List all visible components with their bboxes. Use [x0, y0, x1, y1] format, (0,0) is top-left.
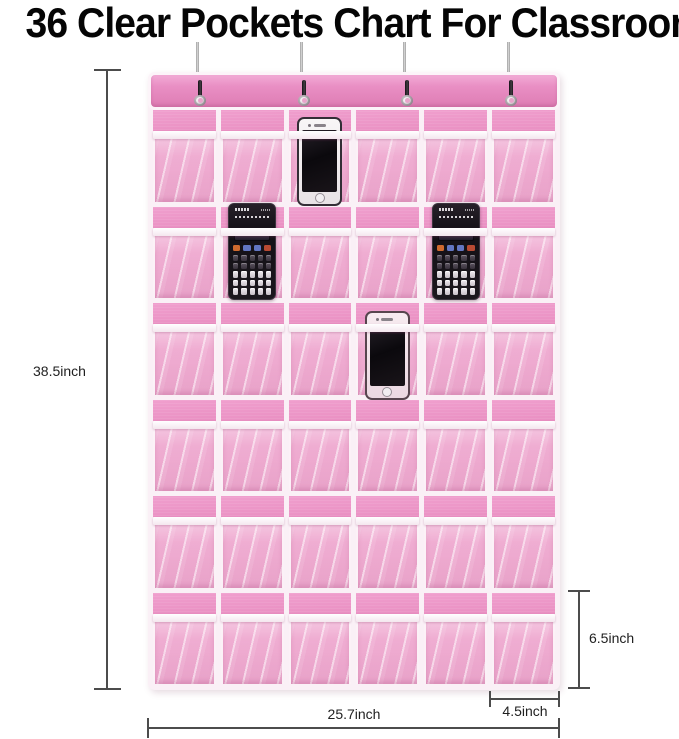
clear-pocket [424, 131, 487, 201]
calculator-key-icon [470, 255, 475, 261]
clear-pocket [289, 517, 352, 587]
calculator-keypad [233, 255, 271, 295]
dimension-tick [568, 687, 590, 689]
clear-pocket [221, 517, 284, 587]
clear-pocket [424, 421, 487, 491]
calculator-key-icon [470, 263, 475, 269]
pocket-height-label: 6.5inch [589, 630, 634, 646]
pocket-binding [356, 228, 419, 236]
hanging-rod [196, 42, 199, 75]
pocket-cell-r1-c5 [424, 110, 487, 202]
pocket-binding [492, 131, 555, 139]
pocket-grid [148, 110, 560, 690]
pocket-binding [492, 517, 555, 525]
pocket-cell-r4-c6 [492, 400, 555, 492]
calculator-brand-text [235, 208, 250, 211]
calculator-model-text [465, 209, 474, 211]
calculator-key-icon [461, 280, 466, 286]
clear-pocket [153, 517, 216, 587]
clear-pocket [153, 131, 216, 201]
grommet-ring-icon [298, 95, 310, 106]
pocket-cell-r4-c1 [153, 400, 216, 492]
clear-pocket [153, 421, 216, 491]
calculator-label-text [235, 216, 269, 218]
hanging-hook [504, 75, 518, 113]
page-title: 36 Clear Pockets Chart For Classroom [26, 0, 679, 46]
grommet-ring-icon [194, 95, 206, 106]
pocket-cell-r6-c6 [492, 593, 555, 685]
calculator-key-icon [445, 271, 450, 277]
top-hanging-band [148, 72, 560, 110]
pocket-cell-r2-c3 [289, 207, 352, 299]
calculator-key-icon [258, 255, 263, 261]
pocket-binding [221, 131, 284, 139]
calculator-key-icon [470, 271, 475, 277]
calculator-key-icon [445, 263, 450, 269]
clear-pocket [289, 421, 352, 491]
grommet-ring-icon [505, 95, 517, 106]
calculator-key-icon [461, 255, 466, 261]
pocket-binding [153, 614, 216, 622]
calculator-item [432, 203, 480, 300]
clear-pocket [424, 614, 487, 684]
calculator-key-icon [437, 280, 442, 286]
pocket-cell-r5-c3 [289, 496, 352, 588]
pocket-binding [424, 131, 487, 139]
product-image: 36 Clear Pockets Chart For Classroom 38.… [0, 0, 679, 739]
calculator-keypad [437, 255, 475, 295]
clear-pocket [356, 228, 419, 298]
phone-camera-icon [376, 318, 379, 321]
calculator-key-icon [266, 255, 271, 261]
calculator-key-icon [461, 271, 466, 277]
calculator-function-keys [437, 245, 475, 251]
clear-pocket [492, 421, 555, 491]
overall-height-dimension-line [106, 70, 108, 690]
pocket-binding [221, 614, 284, 622]
pocket-binding [492, 421, 555, 429]
calculator-key-icon [461, 263, 466, 269]
calculator-key-icon [233, 255, 238, 261]
calculator-key-icon [437, 263, 442, 269]
calculator-key-icon [241, 271, 246, 277]
pocket-binding [424, 614, 487, 622]
phone-home-button-icon [315, 193, 325, 203]
hanging-rod [300, 42, 303, 75]
pocket-organizer [148, 72, 560, 690]
pocket-cell-r2-c2 [221, 207, 284, 299]
pocket-binding [289, 421, 352, 429]
pocket-cell-r6-c2 [221, 593, 284, 685]
calculator-key-icon [241, 288, 246, 294]
pocket-cell-r3-c3 [289, 303, 352, 395]
phone-camera-icon [308, 124, 311, 127]
calculator-key-icon [453, 288, 458, 294]
calculator-key-icon [258, 271, 263, 277]
pocket-cell-r1-c6 [492, 110, 555, 202]
hanging-rod [507, 42, 510, 75]
pocket-cell-r1-c2 [221, 110, 284, 202]
clear-pocket [424, 517, 487, 587]
pocket-binding [424, 228, 487, 236]
clear-pocket [492, 228, 555, 298]
pocket-cell-r5-c6 [492, 496, 555, 588]
pocket-cell-r3-c6 [492, 303, 555, 395]
clear-pocket [289, 614, 352, 684]
clear-pocket [356, 421, 419, 491]
pocket-cell-r2-c5 [424, 207, 487, 299]
calculator-key-icon [266, 280, 271, 286]
pocket-cell-r4-c3 [289, 400, 352, 492]
pocket-binding [153, 517, 216, 525]
pocket-cell-r6-c4 [356, 593, 419, 685]
pocket-cell-r1-c1 [153, 110, 216, 202]
calculator-key-icon [241, 255, 246, 261]
calculator-key-icon [461, 288, 466, 294]
calculator-key-icon [250, 255, 255, 261]
calculator-key-icon [445, 288, 450, 294]
calculator-key-icon [233, 271, 238, 277]
calculator-key-icon [233, 280, 238, 286]
pocket-binding [356, 324, 419, 332]
pocket-cell-r5-c5 [424, 496, 487, 588]
clear-pocket [221, 324, 284, 394]
pocket-binding [221, 421, 284, 429]
clear-pocket [492, 324, 555, 394]
clear-pocket [153, 324, 216, 394]
calculator-key-icon [266, 288, 271, 294]
calculator-item [228, 203, 276, 300]
hanging-hook [400, 75, 414, 113]
pocket-binding [492, 324, 555, 332]
calculator-key-icon [250, 271, 255, 277]
calculator-key-icon [437, 255, 442, 261]
calculator-function-keys [233, 245, 271, 251]
clear-pocket [289, 228, 352, 298]
calculator-key-icon [470, 280, 475, 286]
pocket-binding [356, 421, 419, 429]
pocket-binding [289, 131, 352, 139]
pocket-cell-r6-c5 [424, 593, 487, 685]
calculator-key-icon [241, 280, 246, 286]
hanging-hook [297, 75, 311, 113]
pocket-cell-r1-c3 [289, 110, 352, 202]
clear-pocket [153, 228, 216, 298]
pocket-binding [356, 517, 419, 525]
calculator-key-icon [453, 263, 458, 269]
pocket-binding [221, 228, 284, 236]
pocket-binding [424, 517, 487, 525]
pocket-cell-r2-c4 [356, 207, 419, 299]
calculator-key-icon [241, 263, 246, 269]
pocket-cell-r3-c2 [221, 303, 284, 395]
phone-home-button-icon [382, 387, 392, 397]
pocket-binding [289, 517, 352, 525]
pocket-binding [289, 228, 352, 236]
calculator-key-icon [453, 271, 458, 277]
calculator-key-icon [266, 263, 271, 269]
pocket-binding [289, 614, 352, 622]
pocket-cell-r1-c4 [356, 110, 419, 202]
calculator-key-icon [470, 288, 475, 294]
pocket-binding [492, 228, 555, 236]
calculator-brand-text [439, 208, 454, 211]
pocket-binding [153, 324, 216, 332]
phone-speaker-icon [381, 318, 393, 321]
grommet-ring-icon [401, 95, 413, 106]
calculator-key-icon [250, 288, 255, 294]
clear-pocket [492, 614, 555, 684]
calculator-model-text [261, 209, 270, 211]
calculator-key-icon [250, 280, 255, 286]
calculator-key-icon [445, 255, 450, 261]
calculator-key-icon [453, 280, 458, 286]
clear-pocket [492, 131, 555, 201]
calculator-key-icon [453, 255, 458, 261]
pocket-binding [424, 421, 487, 429]
pocket-cell-r5-c2 [221, 496, 284, 588]
title-row: 36 Clear Pockets Chart For Classroom [0, 0, 679, 46]
clear-pocket [424, 324, 487, 394]
pocket-cell-r4-c2 [221, 400, 284, 492]
phone-screen [302, 130, 337, 192]
calculator-key-icon [437, 288, 442, 294]
pocket-binding [221, 517, 284, 525]
clear-pocket [492, 517, 555, 587]
pocket-cell-r6-c1 [153, 593, 216, 685]
clear-pocket [356, 131, 419, 201]
phone-speaker-icon [314, 124, 326, 127]
clear-pocket [221, 421, 284, 491]
pocket-binding [492, 614, 555, 622]
pocket-binding [153, 131, 216, 139]
clear-pocket [356, 517, 419, 587]
calculator-key-icon [437, 271, 442, 277]
calculator-key-icon [258, 280, 263, 286]
pocket-width-dimension-line [490, 698, 560, 700]
pocket-binding [289, 324, 352, 332]
overall-width-dimension-line [148, 727, 560, 729]
pocket-binding [424, 324, 487, 332]
hanging-rod [403, 42, 406, 75]
calculator-key-icon [266, 271, 271, 277]
dimension-tick [94, 688, 121, 690]
phone-screen [370, 324, 405, 386]
calculator-label-text [439, 216, 473, 218]
pocket-binding [153, 421, 216, 429]
clear-pocket [289, 324, 352, 394]
clear-pocket [153, 614, 216, 684]
pocket-cell-r6-c3 [289, 593, 352, 685]
pocket-cell-r4-c5 [424, 400, 487, 492]
pocket-cell-r3-c4 [356, 303, 419, 395]
pocket-binding [221, 324, 284, 332]
calculator-key-icon [233, 263, 238, 269]
pocket-binding [153, 228, 216, 236]
pocket-binding [356, 131, 419, 139]
overall-height-label: 38.5inch [33, 363, 86, 379]
clear-pocket [356, 614, 419, 684]
dimension-tick [94, 69, 121, 71]
pocket-cell-r5-c1 [153, 496, 216, 588]
clear-pocket [221, 614, 284, 684]
calculator-key-icon [258, 288, 263, 294]
calculator-key-icon [250, 263, 255, 269]
pocket-cell-r3-c1 [153, 303, 216, 395]
pocket-width-label: 4.5inch [488, 703, 562, 719]
pocket-cell-r2-c6 [492, 207, 555, 299]
pocket-cell-r3-c5 [424, 303, 487, 395]
pocket-cell-r2-c1 [153, 207, 216, 299]
calculator-key-icon [233, 288, 238, 294]
pocket-binding [356, 614, 419, 622]
pocket-cell-r4-c4 [356, 400, 419, 492]
pocket-height-dimension-line [578, 591, 580, 689]
dimension-tick [568, 590, 590, 592]
calculator-key-icon [258, 263, 263, 269]
hanging-hook [193, 75, 207, 113]
clear-pocket [221, 131, 284, 201]
pocket-cell-r5-c4 [356, 496, 419, 588]
calculator-key-icon [445, 280, 450, 286]
